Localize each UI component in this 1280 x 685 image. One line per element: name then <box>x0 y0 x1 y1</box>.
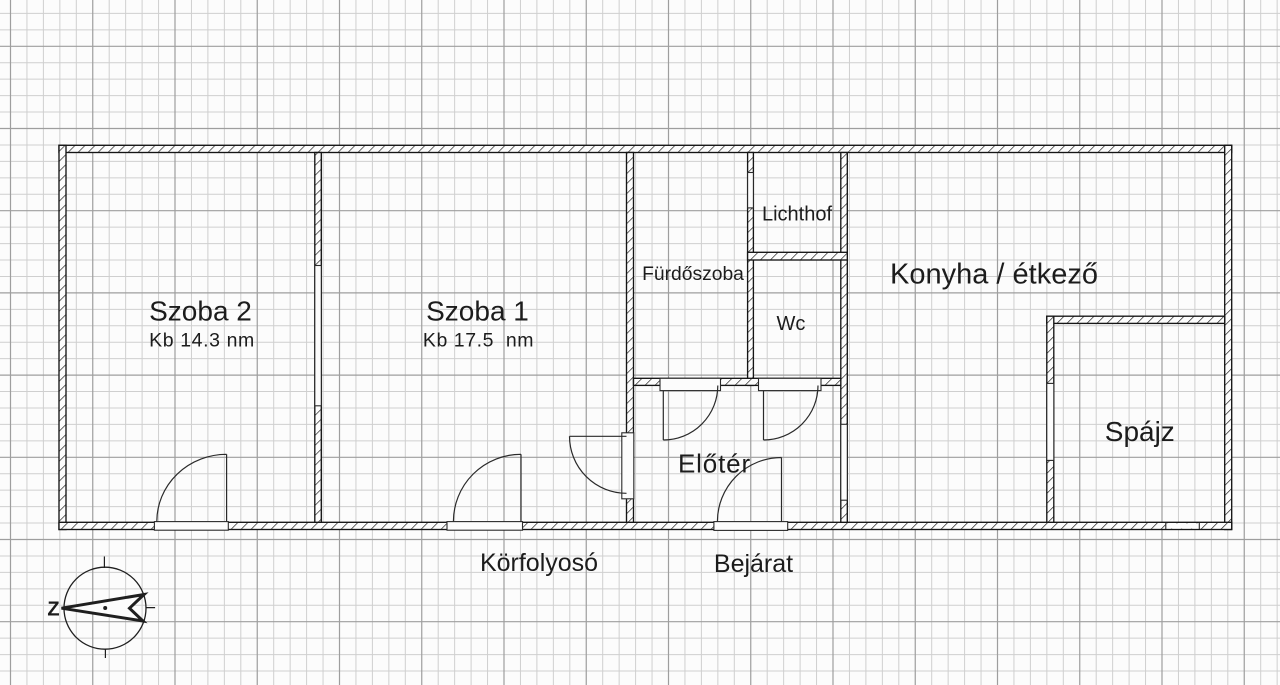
svg-text:Szoba 2: Szoba 2 <box>149 296 252 327</box>
svg-text:Kb 17.5 nm: Kb 17.5 nm <box>423 330 534 352</box>
svg-text:Z: Z <box>47 599 59 621</box>
svg-text:Bejárat: Bejárat <box>714 550 793 578</box>
svg-text:Előtér: Előtér <box>678 449 751 479</box>
svg-text:Körfolyosó: Körfolyosó <box>480 549 598 577</box>
svg-text:Konyha / étkező: Konyha / étkező <box>890 259 1098 291</box>
svg-text:Fürdőszoba: Fürdőszoba <box>642 264 744 285</box>
svg-text:Lichthof: Lichthof <box>762 204 832 226</box>
svg-text:Wc: Wc <box>777 313 806 335</box>
svg-text:Szoba 1: Szoba 1 <box>426 296 529 327</box>
svg-text:Kb 14.3 nm: Kb 14.3 nm <box>149 330 255 352</box>
svg-text:Spájz: Spájz <box>1105 416 1175 447</box>
